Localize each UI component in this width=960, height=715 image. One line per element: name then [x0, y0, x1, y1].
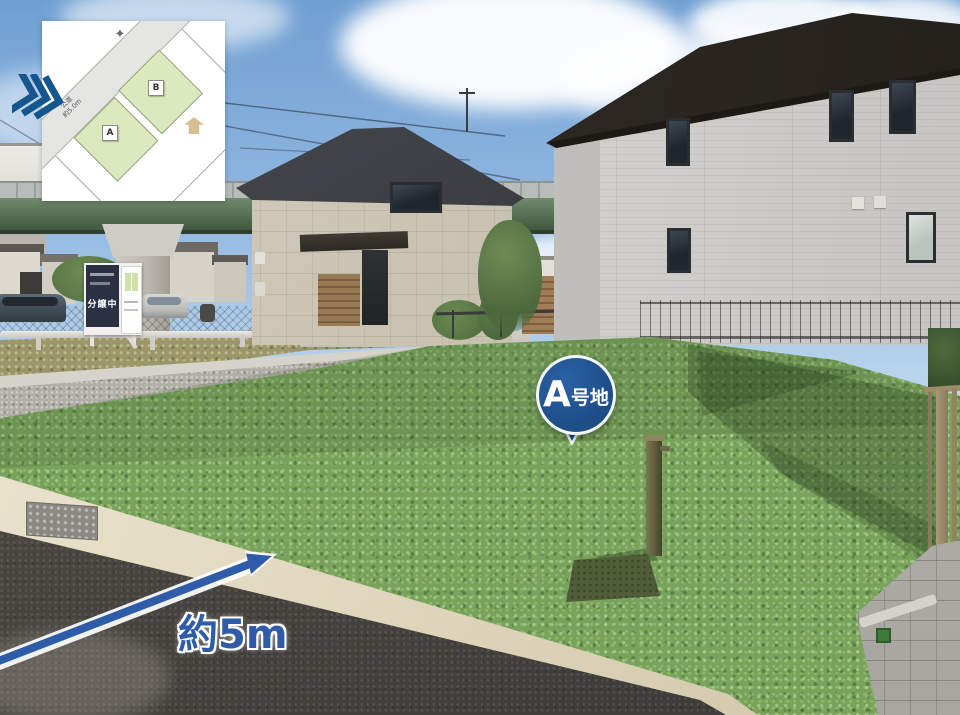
annotated-lot-photo: 分譲中: [0, 0, 960, 715]
width-arrow-label: 約5m: [178, 602, 288, 660]
width-arrow: [0, 0, 960, 715]
